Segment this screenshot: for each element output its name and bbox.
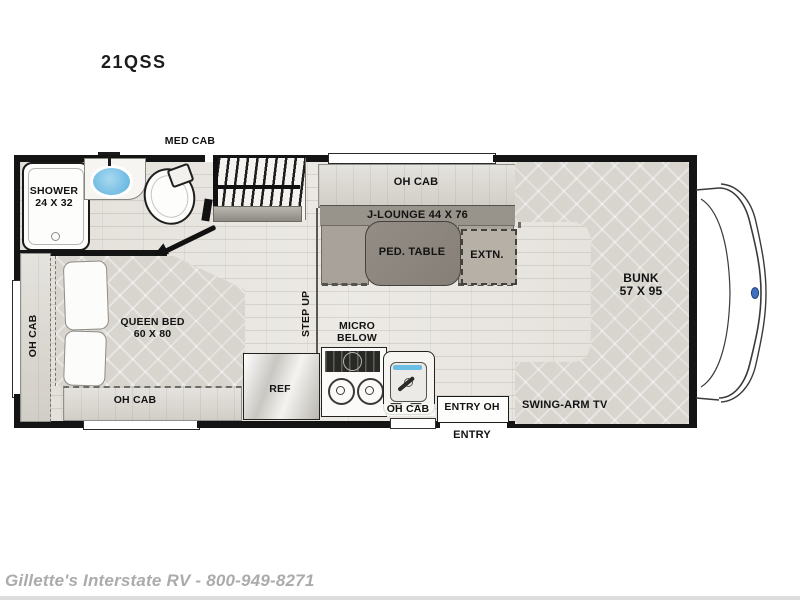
entry-label: ENTRY (437, 429, 507, 441)
bath-faucet-stem (108, 152, 111, 166)
cab-front-outline (695, 175, 780, 410)
bunk-label: BUNK 57 X 95 (597, 272, 685, 299)
bottom-divider (0, 596, 800, 600)
j-lounge-label: J-LOUNGE 44 X 76 (330, 209, 505, 221)
stove (321, 347, 387, 417)
window-top (328, 153, 496, 164)
shower-drain (51, 232, 60, 241)
queen-bed-label: QUEEN BED 60 X 80 (95, 317, 210, 341)
oh-cab-left-label: OH CAB (28, 308, 40, 364)
sink-cabinet-bump (390, 418, 436, 429)
entry-oh-label: ENTRY OH (438, 402, 506, 414)
wall-top-right (493, 155, 697, 162)
extn-label: EXTN. (462, 249, 512, 261)
shower-label: SHOWER 24 X 32 (24, 186, 84, 210)
ped-table-label: PED. TABLE (370, 246, 454, 258)
oh-cab-bed-label: OH CAB (95, 395, 175, 407)
bench-dash-left (322, 283, 367, 286)
bunk-ladder-midbar (213, 185, 300, 189)
swing-arm-tv-label: SWING-ARM TV (522, 399, 630, 411)
page-title: 21QSS (101, 52, 167, 73)
bunk-ladder-step (213, 206, 302, 222)
ref-label: REF (255, 384, 305, 396)
oh-cab-lounge-label: OH CAB (358, 176, 474, 188)
step-up-label: STEP UP (301, 286, 313, 342)
sink-water (393, 365, 422, 370)
step-up-line (316, 208, 318, 355)
floorplan-page: 21QSS SHOWER 24 X 32 (0, 0, 800, 600)
wall-gap-medcab (205, 155, 213, 162)
wall-bottom-left (14, 421, 85, 428)
micro-below-label: MICRO BELOW (320, 321, 394, 345)
cab-badge (751, 288, 758, 299)
oh-cab-galley-label: OH CAB (381, 404, 435, 416)
dealer-footer: Gillette's Interstate RV - 800-949-8271 (5, 571, 314, 591)
j-lounge-bench-left (321, 225, 369, 285)
bath-sink (90, 165, 133, 198)
med-cab-label: MED CAB (150, 136, 230, 148)
